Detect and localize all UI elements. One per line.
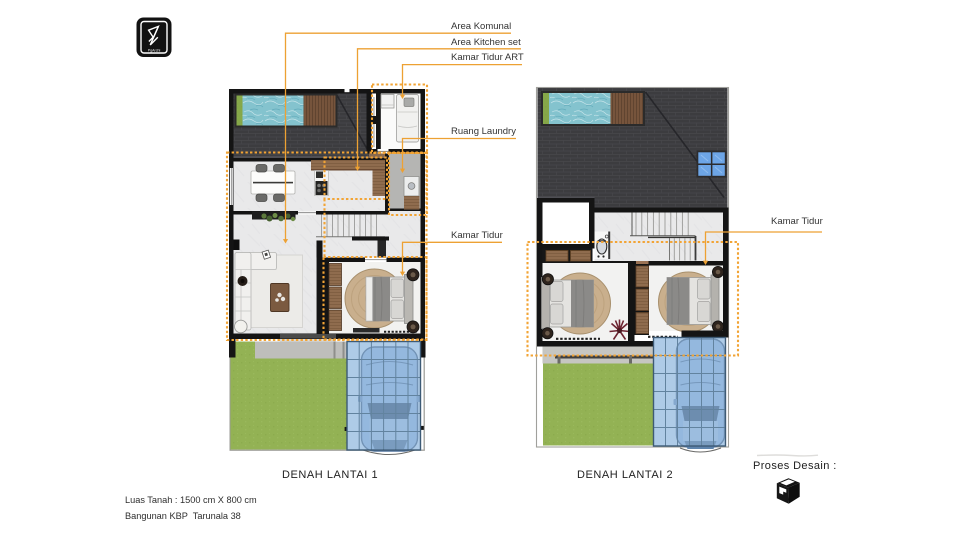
svg-text:PgArchi: PgArchi: [148, 49, 161, 53]
